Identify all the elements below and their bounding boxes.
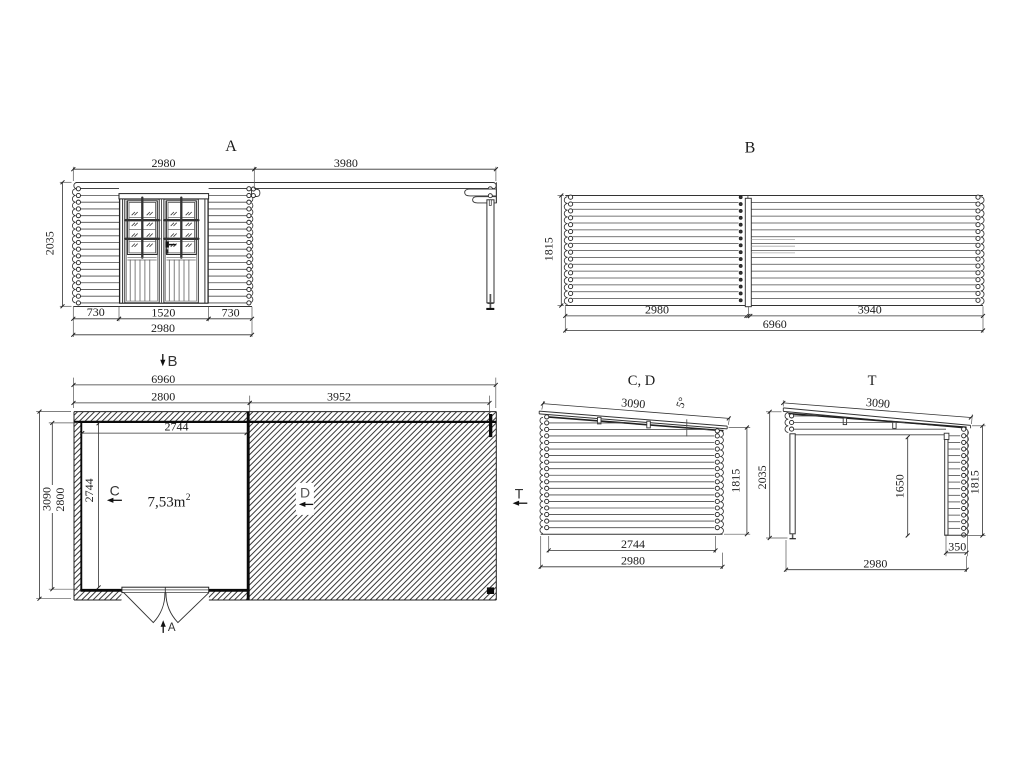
svg-text:C, D: C, D: [628, 373, 655, 389]
svg-text:2744: 2744: [82, 478, 96, 502]
svg-text:A: A: [168, 622, 176, 634]
svg-text:3952: 3952: [327, 390, 351, 404]
svg-text:2035: 2035: [43, 231, 57, 255]
svg-text:2744: 2744: [165, 420, 189, 434]
svg-text:2035: 2035: [755, 465, 769, 489]
svg-text:6960: 6960: [763, 317, 787, 331]
svg-text:2980: 2980: [863, 556, 887, 570]
svg-text:3090: 3090: [621, 395, 646, 411]
svg-text:2980: 2980: [645, 302, 669, 316]
svg-text:2980: 2980: [151, 321, 175, 335]
svg-text:T: T: [515, 485, 524, 501]
svg-text:2980: 2980: [621, 554, 645, 568]
svg-text:B: B: [745, 140, 756, 157]
svg-text:B: B: [168, 353, 178, 370]
svg-text:3090: 3090: [40, 487, 54, 511]
svg-text:7,53m: 7,53m: [148, 495, 186, 511]
svg-text:3940: 3940: [858, 302, 882, 316]
svg-text:6960: 6960: [151, 372, 175, 386]
svg-text:1650: 1650: [892, 474, 906, 498]
svg-text:3090: 3090: [865, 395, 890, 411]
svg-text:2800: 2800: [151, 389, 175, 403]
svg-text:350: 350: [948, 539, 966, 553]
svg-text:730: 730: [222, 306, 240, 320]
svg-text:2800: 2800: [53, 488, 67, 512]
svg-text:1815: 1815: [541, 237, 555, 261]
svg-text:A: A: [225, 138, 237, 155]
svg-text:D: D: [300, 484, 310, 500]
svg-text:T: T: [868, 373, 877, 389]
svg-text:1815: 1815: [967, 470, 981, 494]
svg-text:C: C: [110, 482, 120, 498]
svg-text:2744: 2744: [621, 537, 645, 551]
svg-text:1520: 1520: [151, 306, 175, 320]
svg-text:730: 730: [87, 305, 105, 319]
svg-text:3980: 3980: [334, 156, 358, 170]
svg-text:1815: 1815: [728, 469, 742, 493]
svg-text:2980: 2980: [152, 156, 176, 170]
svg-text:2: 2: [186, 493, 191, 503]
